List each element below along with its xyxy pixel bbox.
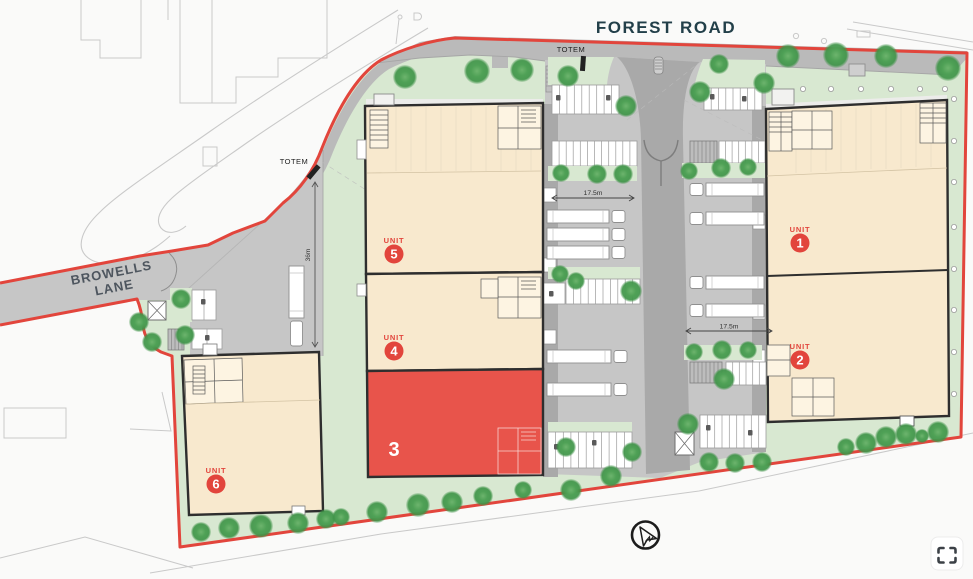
svg-text:2: 2: [796, 353, 803, 368]
svg-text:5: 5: [390, 247, 397, 262]
svg-text:3: 3: [388, 439, 399, 461]
svg-text:TOTEM: TOTEM: [280, 157, 309, 166]
svg-text:17.5m: 17.5m: [584, 190, 603, 197]
svg-text:UNIT: UNIT: [384, 236, 405, 245]
svg-text:UNIT: UNIT: [790, 225, 811, 234]
svg-text:UNIT: UNIT: [384, 333, 405, 342]
svg-text:1: 1: [796, 236, 803, 251]
svg-text:4: 4: [390, 344, 398, 359]
svg-text:TOTEM: TOTEM: [557, 45, 586, 54]
svg-text:6: 6: [212, 477, 219, 492]
svg-text:17.5m: 17.5m: [720, 324, 739, 331]
svg-text:36m: 36m: [305, 249, 312, 262]
svg-text:UNIT: UNIT: [790, 342, 811, 351]
svg-text:UNIT: UNIT: [206, 466, 227, 475]
svg-text:FOREST ROAD: FOREST ROAD: [596, 18, 736, 37]
